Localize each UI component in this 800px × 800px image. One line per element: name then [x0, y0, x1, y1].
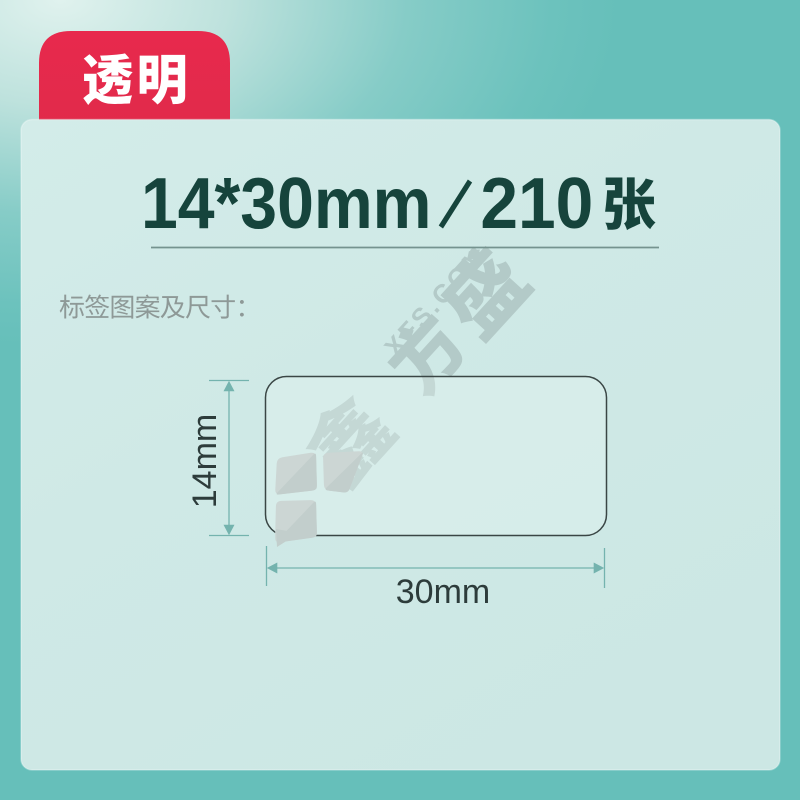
- svg-text:14mm: 14mm: [186, 414, 224, 508]
- svg-text:14*30mm: 14*30mm: [141, 163, 431, 243]
- svg-text:210: 210: [480, 163, 593, 243]
- svg-text:30mm: 30mm: [396, 573, 490, 611]
